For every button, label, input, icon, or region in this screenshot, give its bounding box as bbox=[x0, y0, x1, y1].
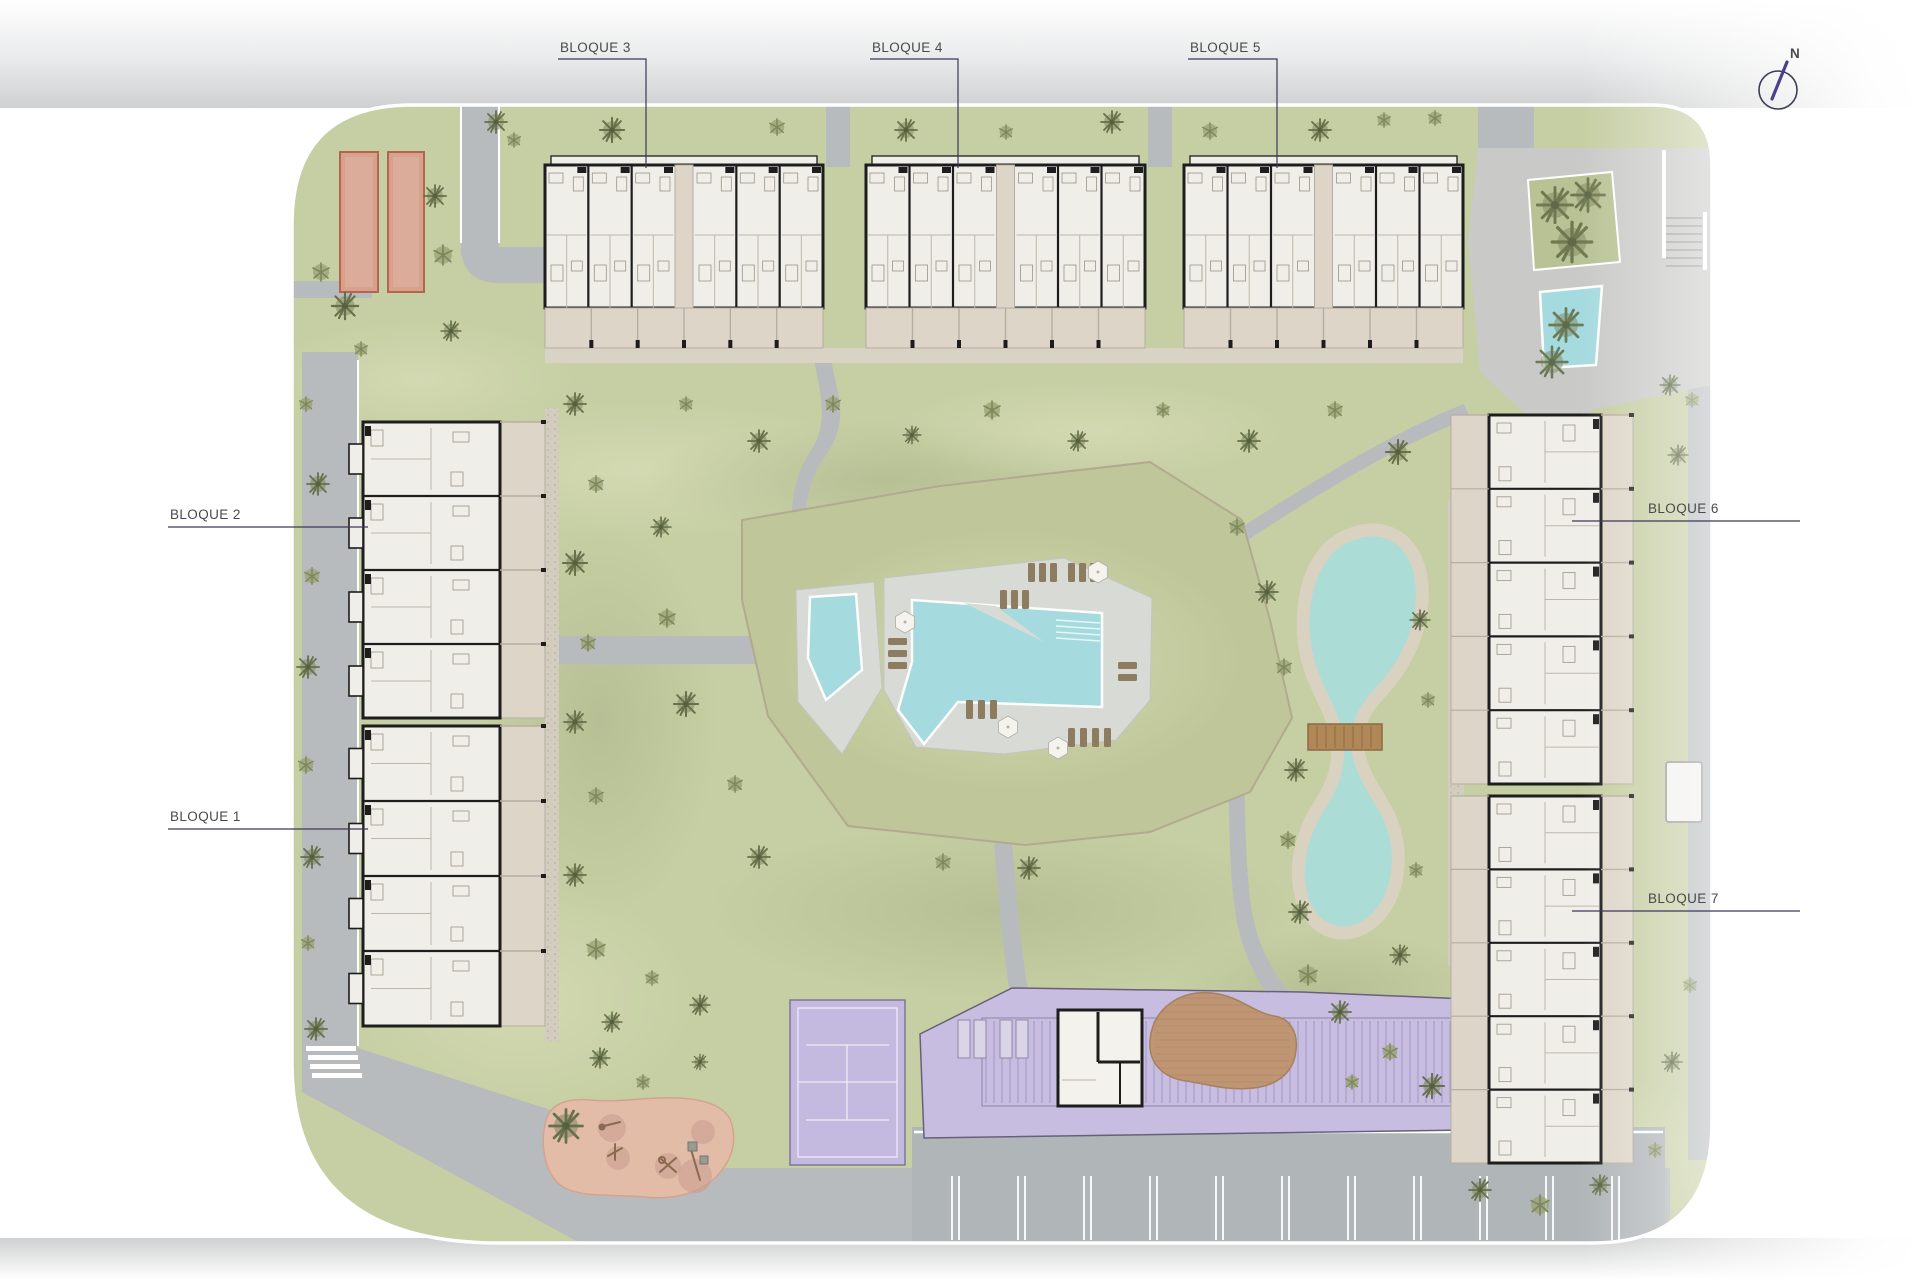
northeast-entry bbox=[1478, 105, 1534, 153]
tree-icon bbox=[1018, 857, 1040, 879]
stair-core bbox=[1304, 167, 1313, 173]
column bbox=[1275, 340, 1279, 348]
column bbox=[589, 340, 593, 348]
tree-icon bbox=[307, 473, 329, 495]
column bbox=[541, 568, 546, 572]
bloque-4-text: BLOQUE 4 bbox=[872, 40, 943, 55]
tree-icon bbox=[1309, 119, 1331, 141]
sun-lounger bbox=[888, 638, 907, 645]
tree-icon bbox=[564, 864, 586, 886]
bloque-1-text: BLOQUE 1 bbox=[170, 809, 241, 824]
bloque-3-text: BLOQUE 3 bbox=[560, 40, 631, 55]
tree-icon bbox=[332, 293, 358, 319]
stair-core bbox=[365, 805, 371, 815]
stair-core bbox=[899, 167, 908, 173]
west-balcony bbox=[349, 899, 363, 929]
tree-icon bbox=[297, 656, 319, 678]
bloque-5-text: BLOQUE 5 bbox=[1190, 40, 1261, 55]
gap-path-2 bbox=[1148, 105, 1172, 167]
tree-icon bbox=[564, 393, 586, 415]
stair-core bbox=[942, 167, 951, 173]
play-tower bbox=[688, 1142, 697, 1151]
sun-lounger bbox=[1050, 563, 1057, 582]
tree-icon bbox=[590, 1048, 610, 1068]
stair-core bbox=[1134, 167, 1143, 173]
padel-court bbox=[790, 1000, 905, 1165]
gap-path-1 bbox=[826, 105, 850, 167]
sun-lounger bbox=[1079, 563, 1086, 582]
stair-core bbox=[365, 426, 371, 436]
sun-lounger bbox=[1068, 728, 1075, 747]
sun-lounger bbox=[978, 700, 985, 719]
walk-front-top-blocks bbox=[545, 348, 1463, 363]
column bbox=[957, 340, 961, 348]
palm-tree-icon bbox=[1537, 187, 1572, 222]
tree-icon bbox=[651, 517, 671, 537]
column bbox=[775, 340, 779, 348]
sun-lounger bbox=[1080, 728, 1087, 747]
sun-lounger bbox=[1068, 563, 1075, 582]
bloque-6-text: BLOQUE 6 bbox=[1648, 501, 1719, 516]
stair-core bbox=[621, 167, 630, 173]
tree-icon bbox=[1329, 1001, 1351, 1023]
column bbox=[1415, 340, 1419, 348]
west-balcony bbox=[349, 592, 363, 622]
tree-icon bbox=[1101, 111, 1123, 133]
palm-tree-icon bbox=[1550, 309, 1583, 342]
bloque-7-text: BLOQUE 7 bbox=[1648, 891, 1719, 906]
tree-icon bbox=[748, 846, 770, 868]
tree-icon bbox=[1390, 945, 1410, 965]
sun-lounger bbox=[990, 700, 997, 719]
central-garden bbox=[742, 462, 1292, 845]
tree-icon bbox=[1285, 759, 1307, 781]
column bbox=[728, 340, 732, 348]
column bbox=[1004, 340, 1008, 348]
tree-icon bbox=[1256, 581, 1278, 603]
sun-lounger bbox=[1104, 728, 1111, 747]
tree-icon bbox=[1238, 430, 1260, 452]
stair-core bbox=[1365, 167, 1374, 173]
stair-core bbox=[1260, 167, 1269, 173]
column bbox=[1322, 340, 1326, 348]
column bbox=[682, 340, 686, 348]
stair-core bbox=[365, 574, 371, 584]
stair-core bbox=[577, 167, 586, 173]
column bbox=[541, 799, 546, 803]
west-balcony bbox=[349, 824, 363, 854]
block-3-building bbox=[545, 156, 823, 348]
west-balcony bbox=[349, 749, 363, 779]
stair-core bbox=[812, 167, 821, 173]
tree-icon bbox=[485, 111, 507, 133]
tree-icon bbox=[602, 1012, 622, 1032]
clubhouse bbox=[1058, 1010, 1142, 1106]
stair-core bbox=[769, 167, 778, 173]
tree-icon bbox=[424, 185, 446, 207]
block-4-building bbox=[866, 156, 1145, 348]
stair-core bbox=[1409, 167, 1418, 173]
north-letter: N bbox=[1790, 46, 1800, 61]
tree-icon bbox=[1386, 440, 1410, 464]
tree-icon bbox=[1420, 1074, 1444, 1098]
block-2-building bbox=[349, 420, 546, 718]
column bbox=[1050, 340, 1054, 348]
tree-icon bbox=[903, 426, 921, 444]
column bbox=[541, 874, 546, 878]
tree-icon bbox=[692, 1054, 707, 1069]
entry-corridor bbox=[997, 165, 1015, 308]
palm-tree-icon bbox=[1537, 347, 1568, 378]
tree-icon bbox=[748, 430, 770, 452]
tree-icon bbox=[674, 692, 698, 716]
stair-core bbox=[365, 880, 371, 890]
stair-core bbox=[664, 167, 673, 173]
stair-core bbox=[365, 648, 371, 658]
column bbox=[541, 724, 546, 728]
site-area bbox=[260, 105, 1750, 1243]
playground bbox=[543, 1098, 733, 1198]
stair-core bbox=[1452, 167, 1461, 173]
play-tower bbox=[700, 1156, 708, 1164]
tree-icon bbox=[1410, 610, 1430, 630]
entry-corridor bbox=[675, 165, 693, 308]
sun-lounger bbox=[1039, 563, 1046, 582]
block-1-building bbox=[349, 724, 546, 1026]
gravel-speckle-1 bbox=[545, 408, 559, 1042]
stair-core bbox=[1091, 167, 1100, 173]
tree-icon bbox=[305, 1018, 327, 1040]
column bbox=[911, 340, 915, 348]
stair-core bbox=[365, 730, 371, 740]
bloque-2-text: BLOQUE 2 bbox=[170, 507, 241, 522]
sun-lounger bbox=[1028, 563, 1035, 582]
tree-icon bbox=[1289, 901, 1311, 923]
stair-core bbox=[1217, 167, 1226, 173]
sun-lounger bbox=[1118, 674, 1137, 681]
right-fade bbox=[1580, 0, 1920, 1280]
tree-icon bbox=[690, 995, 710, 1015]
tree-icon bbox=[895, 119, 917, 141]
patio-band bbox=[1451, 796, 1489, 1163]
stair-core bbox=[725, 167, 734, 173]
west-balcony bbox=[349, 444, 363, 474]
tree-icon bbox=[563, 551, 587, 575]
stair-core bbox=[986, 167, 995, 173]
sun-lounger bbox=[1022, 590, 1029, 609]
tree-icon bbox=[1469, 1179, 1491, 1201]
stair-core bbox=[365, 955, 371, 965]
sun-lounger bbox=[966, 700, 973, 719]
tree-icon bbox=[550, 1110, 583, 1143]
column bbox=[541, 420, 546, 424]
west-balcony bbox=[349, 666, 363, 696]
column bbox=[1097, 340, 1101, 348]
sun-lounger bbox=[1092, 728, 1099, 747]
site-plan-canvas: BLOQUE 3 BLOQUE 4 BLOQUE 5 BLOQUE 2 BLOQ… bbox=[0, 0, 1920, 1280]
column bbox=[1229, 340, 1233, 348]
column bbox=[541, 949, 546, 953]
tree-icon bbox=[600, 118, 624, 142]
stair-core bbox=[1047, 167, 1056, 173]
column bbox=[541, 494, 546, 498]
patio-band bbox=[1451, 415, 1489, 784]
sun-lounger bbox=[1000, 590, 1007, 609]
sun-lounger bbox=[1118, 662, 1137, 669]
column bbox=[636, 340, 640, 348]
west-balcony bbox=[349, 518, 363, 548]
tree-icon bbox=[441, 321, 461, 341]
stair-core bbox=[365, 500, 371, 510]
tree-icon bbox=[301, 846, 323, 868]
column bbox=[541, 642, 546, 646]
sun-lounger bbox=[888, 662, 907, 669]
wooden-bridge bbox=[1308, 724, 1382, 750]
site-plan-page: BLOQUE 3 BLOQUE 4 BLOQUE 5 BLOQUE 2 BLOQ… bbox=[0, 0, 1920, 1280]
block-5-building bbox=[1184, 156, 1463, 348]
sun-lounger bbox=[1011, 590, 1018, 609]
entry-corridor bbox=[1315, 165, 1333, 308]
tree-icon bbox=[564, 711, 586, 733]
sun-lounger bbox=[888, 650, 907, 657]
west-balcony bbox=[349, 974, 363, 1004]
tree-icon bbox=[1068, 431, 1088, 451]
column bbox=[1368, 340, 1372, 348]
